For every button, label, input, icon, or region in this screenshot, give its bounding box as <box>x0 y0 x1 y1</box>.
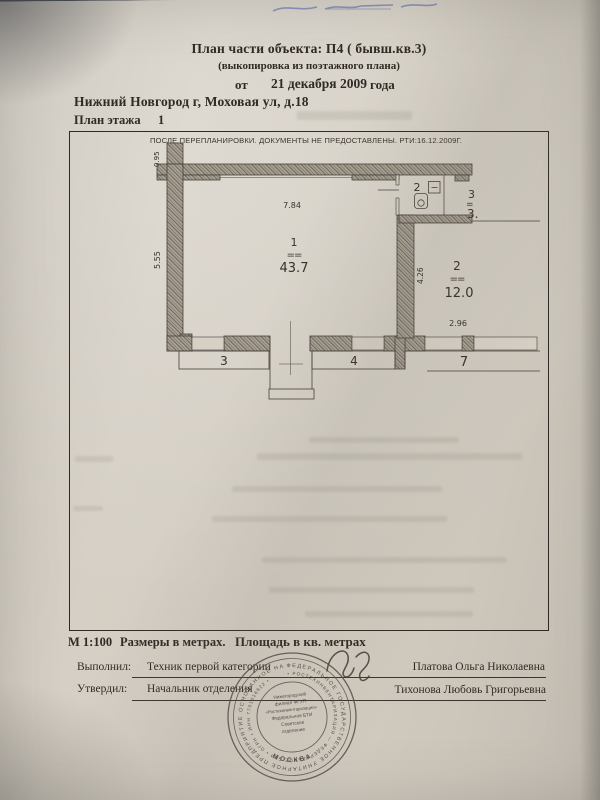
wall <box>157 175 220 180</box>
walls <box>157 143 474 369</box>
bleed-through-smudge <box>297 111 412 120</box>
bleed-through-smudge <box>309 437 459 443</box>
room2-tie: == <box>450 274 465 285</box>
room1-number: 1 <box>291 236 298 249</box>
approved-name: Тихонова Любовь Григорьевна <box>395 684 546 696</box>
executed-label: Выполнил: <box>77 661 131 673</box>
date-value: 21 декабря 2009 <box>271 76 367 92</box>
approved-label: Утвердил: <box>77 683 127 695</box>
wc-number: 2 <box>414 181 421 194</box>
executed-name: Платова Ольга Николаевна <box>413 661 545 673</box>
dim-top: 7.84 <box>283 201 301 210</box>
units-dims-label: Размеры в метрах. <box>120 635 225 650</box>
bleed-through-smudge <box>75 456 113 462</box>
bleed-through-smudge <box>212 516 447 522</box>
scale-label: М 1:100 <box>68 635 112 650</box>
room2-number: 2 <box>453 259 461 273</box>
room2-area: 12.0 <box>445 286 474 301</box>
document-subtitle: (выкопировка из поэтажного плана) <box>7 60 600 72</box>
date-suffix: года <box>370 77 395 93</box>
bleed-through-smudge <box>269 587 474 593</box>
wall <box>455 175 469 181</box>
svg-text:отделение: отделение <box>282 728 306 735</box>
wall <box>310 336 352 351</box>
room1-tie: == <box>287 250 302 261</box>
stamp-center-text: Нижегородский филиал ФГУП «Ростехинвента… <box>264 689 321 736</box>
wall <box>399 215 472 223</box>
bleed-through-smudge <box>73 506 103 511</box>
official-stamp: ФЕДЕРАЛЬНОЕ ГОСУДАРСТВЕННОЕ УНИТАРНОЕ ПР… <box>216 641 368 793</box>
porch7-label: 7 <box>460 355 468 370</box>
bleed-through-smudge <box>305 611 473 617</box>
entrance-steps <box>270 351 312 389</box>
dim-stub: 0.95 <box>153 151 161 167</box>
document-title: План части объекта: П4 ( бывш.кв.3) <box>7 41 600 57</box>
scanned-document-photo: План части объекта: П4 ( бывш.кв.3) (вык… <box>0 0 600 800</box>
wall <box>167 164 183 351</box>
window-icon <box>474 337 537 350</box>
window-icon <box>425 337 462 350</box>
bleed-through-smudge <box>232 486 442 492</box>
window-icon <box>352 337 384 350</box>
dim-middle: 4.26 <box>416 267 425 284</box>
wall <box>352 175 399 180</box>
address-line: Нижний Новгород г, Моховая ул, д.18 <box>74 94 309 110</box>
entrance-step <box>269 389 314 399</box>
porch4-label: 4 <box>350 354 358 368</box>
window-icon <box>192 337 224 350</box>
floor-label: План этажа <box>74 113 141 128</box>
room1-area: 43.7 <box>280 261 309 276</box>
bleed-through-smudge <box>257 453 522 460</box>
svg-text:Советское: Советское <box>281 720 305 728</box>
wall <box>224 336 270 351</box>
toilet-bowl-icon <box>418 200 424 206</box>
wall <box>462 336 474 351</box>
date-prefix: от <box>235 77 248 93</box>
floor-value: 1 <box>158 113 164 128</box>
handwritten-blue-scribble <box>265 1 445 15</box>
wall <box>397 215 414 338</box>
bleed-through-smudge <box>262 557 507 563</box>
porch-7-outline <box>405 351 540 371</box>
wall <box>395 336 405 369</box>
wall <box>157 164 472 175</box>
porch3-label: 3 <box>220 354 228 368</box>
wall <box>167 336 192 351</box>
dim-left: 5.55 <box>153 251 162 269</box>
porches <box>179 351 540 399</box>
dim-right: 2.96 <box>449 319 467 328</box>
svg-text:Нижегородский: Нижегородский <box>273 690 307 699</box>
room3-area: 3. <box>467 207 478 221</box>
